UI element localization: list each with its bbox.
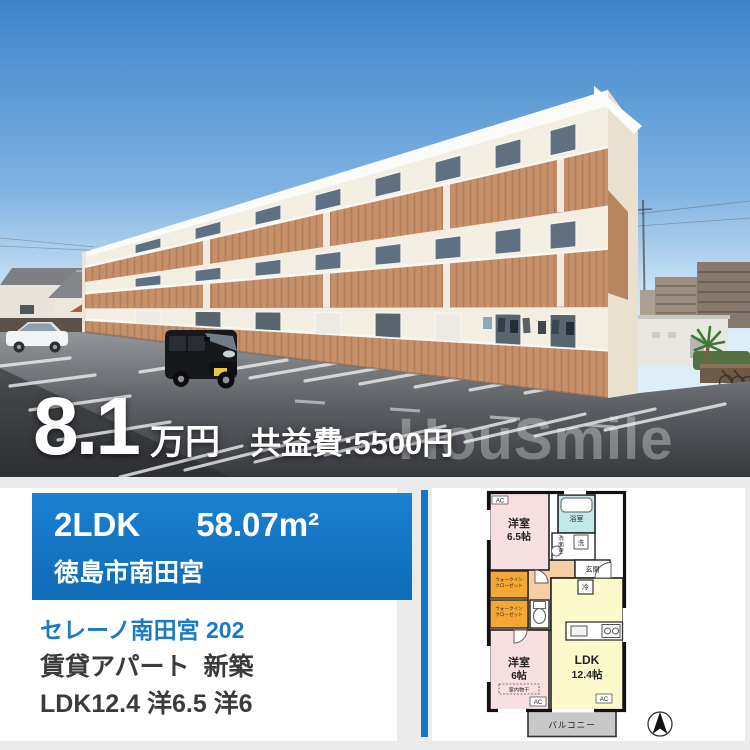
- floorplan-image: AC AC AC 洋室 6.5帖 浴室 洗 面 室 洗 玄関 冷 ウォークイン …: [432, 488, 745, 741]
- price-value: 8.1: [33, 386, 138, 468]
- fridge-label: 冷: [582, 583, 589, 592]
- washroom-label: 洗: [558, 534, 564, 542]
- indoor-drying-label: 室内物干: [509, 686, 530, 694]
- svg-text:クローゼット: クローゼット: [495, 611, 523, 618]
- listing-title-link[interactable]: セレーノ南田宮 202: [40, 611, 244, 645]
- divider-bar: [421, 490, 428, 737]
- management-fee: 共益費:5500円: [250, 418, 453, 463]
- floorplan-card[interactable]: AC AC AC 洋室 6.5帖 浴室 洗 面 室 洗 玄関 冷 ウォークイン …: [432, 488, 745, 741]
- balcony-label: バルコニー: [548, 720, 595, 730]
- bedroom-b-label: 洋室: [508, 655, 530, 669]
- svg-text:クローゼット: クローゼット: [495, 582, 523, 589]
- ldk-label: LDK: [575, 653, 600, 667]
- condition-badge: 新築: [204, 653, 254, 681]
- listing-category: 賃貸アパート新築: [40, 647, 254, 683]
- room-ldk: [551, 578, 623, 710]
- price-overlay: 8.1 万円 共益費:5500円: [33, 386, 453, 468]
- ac-label: AC: [496, 499, 505, 505]
- svg-text:室: 室: [558, 547, 564, 555]
- layout-type: 2LDK: [54, 506, 140, 543]
- floor-area: 58.07m²: [196, 506, 319, 543]
- wic-2-label: ウォークイン: [495, 605, 523, 612]
- layout-summary-box: 2LDK58.07m² 徳島市南田宮: [32, 493, 412, 600]
- bedroom-b-size: 6帖: [511, 669, 527, 682]
- svg-text:面: 面: [558, 542, 564, 549]
- ac-label: AC: [534, 700, 543, 706]
- property-photo: HouSmile 8.1 万円 共益費:5500円: [0, 0, 750, 477]
- price-unit: 万円: [150, 414, 220, 465]
- building-type: 賃貸アパート: [40, 653, 190, 681]
- location: 徳島市南田宮: [54, 553, 412, 589]
- compass-icon: [648, 712, 672, 736]
- washer-label: 洗: [578, 538, 585, 547]
- ac-label: AC: [600, 697, 609, 703]
- listing-info-section: AC AC AC 洋室 6.5帖 浴室 洗 面 室 洗 玄関 冷 ウォークイン …: [0, 477, 750, 750]
- bath-label: 浴室: [570, 514, 584, 523]
- entrance-label: 玄関: [586, 565, 600, 574]
- ldk-size: 12.4帖: [572, 668, 603, 681]
- bedroom-a-size: 6.5帖: [507, 530, 531, 543]
- rooms-summary: LDK12.4 洋6.5 洋6: [40, 684, 253, 720]
- bedroom-a-label: 洋室: [508, 516, 530, 530]
- wic-1-label: ウォークイン: [495, 576, 523, 583]
